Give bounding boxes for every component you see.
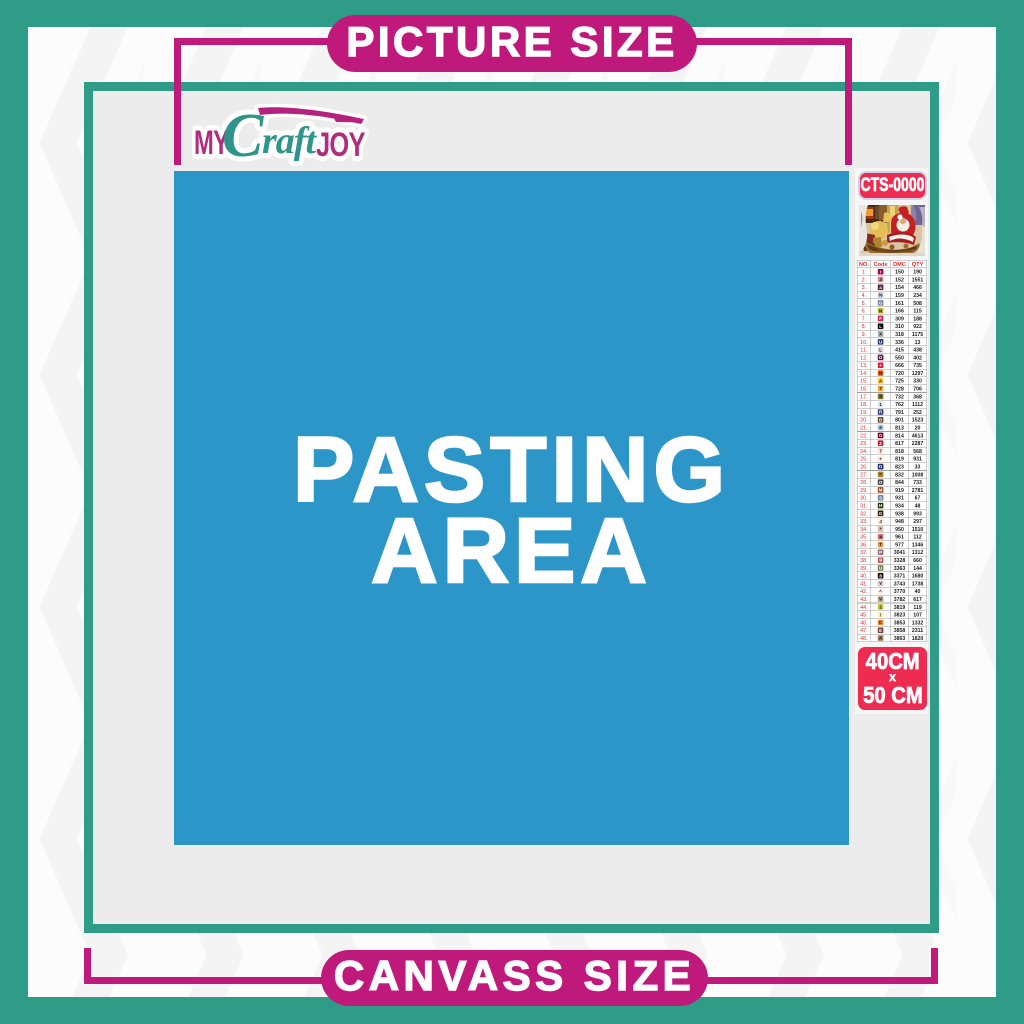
svg-text:961: 961 [895,535,904,541]
svg-text:3743: 3743 [894,582,906,588]
svg-text:115: 115 [914,309,922,315]
svg-text:H: H [879,503,882,508]
svg-text:22.: 22. [860,434,868,440]
svg-text:10.: 10. [860,340,868,346]
svg-text:25.: 25. [860,457,868,463]
svg-text:Code: Code [874,262,888,268]
svg-text:818: 818 [895,449,904,455]
svg-text:931: 931 [895,496,904,502]
svg-text:34.: 34. [860,527,868,533]
svg-text:7.: 7. [862,317,867,323]
svg-text:3863: 3863 [894,636,906,642]
svg-text:5.: 5. [862,301,867,307]
svg-text:29.: 29. [860,488,868,494]
svg-text:161: 161 [895,301,904,307]
svg-text:666: 666 [895,363,904,369]
svg-text:144: 144 [914,566,923,572]
svg-text:159: 159 [895,293,904,299]
svg-text:297: 297 [914,519,923,525]
svg-text:4613: 4613 [912,434,924,440]
svg-text:G: G [879,301,883,306]
svg-text:16.: 16. [860,387,868,393]
svg-text:934: 934 [895,504,904,510]
svg-text:948: 948 [895,519,904,525]
svg-text:67: 67 [915,496,921,502]
svg-text:931: 931 [914,457,923,463]
svg-text:15.: 15. [860,379,868,385]
svg-text:402: 402 [914,356,923,362]
svg-text:817: 817 [895,441,904,447]
svg-text:20.: 20. [860,418,868,424]
svg-text:48.: 48. [860,636,868,642]
svg-text:14.: 14. [860,371,868,377]
svg-text:*: * [880,527,882,532]
svg-text:3858: 3858 [894,629,906,635]
svg-text:801: 801 [895,418,904,424]
svg-text:T: T [880,542,883,547]
svg-text:N: N [879,371,882,376]
svg-text:P: P [879,550,882,555]
svg-text:L: L [880,324,883,329]
svg-text:1551: 1551 [912,278,924,284]
svg-text:993: 993 [914,512,923,518]
svg-text:466: 466 [914,285,923,291]
svg-text:32.: 32. [860,512,868,518]
svg-text:S: S [879,394,882,399]
svg-text:33: 33 [915,465,921,471]
svg-text:819: 819 [895,457,904,463]
svg-text:1312: 1312 [912,551,924,557]
svg-text:190: 190 [914,270,923,276]
svg-text:438: 438 [914,348,923,354]
svg-text:^: ^ [880,589,883,594]
svg-text:Y: Y [879,581,882,586]
svg-text:19.: 19. [860,410,868,416]
svg-text:raft: raft [262,120,317,162]
svg-text:31.: 31. [860,504,868,510]
svg-text:44.: 44. [860,605,868,611]
svg-text:252: 252 [914,410,923,416]
svg-text:40.: 40. [860,574,868,580]
svg-text:660: 660 [914,558,923,564]
svg-text:762: 762 [895,402,904,408]
svg-text:728: 728 [895,387,904,393]
svg-text:18.: 18. [860,402,868,408]
svg-text:6.: 6. [862,309,867,315]
svg-text:733: 733 [914,480,923,486]
svg-text:1510: 1510 [912,527,924,533]
svg-text:1297: 1297 [912,371,924,377]
svg-text:166: 166 [895,309,904,315]
svg-text:568: 568 [914,449,923,455]
svg-text:21.: 21. [860,426,868,432]
svg-text:2.: 2. [862,278,867,284]
svg-text:1.: 1. [862,270,867,276]
svg-text:27.: 27. [860,473,868,479]
svg-text:336: 336 [895,340,904,346]
svg-text:NO.: NO. [859,262,869,268]
svg-text:20: 20 [915,426,921,432]
svg-text:17.: 17. [860,395,868,401]
svg-text:3819: 3819 [894,605,906,611]
svg-text:309: 309 [895,317,904,323]
svg-text:732: 732 [895,395,904,401]
svg-text:234: 234 [914,293,923,299]
svg-text:150: 150 [895,270,904,276]
svg-text:844: 844 [895,480,904,486]
svg-text:26.: 26. [860,465,868,471]
svg-text:3041: 3041 [894,551,906,557]
svg-text:415: 415 [895,348,904,354]
svg-text:938: 938 [895,512,904,518]
svg-text:40: 40 [915,590,921,596]
svg-text:C: C [222,102,264,166]
svg-text:1175: 1175 [912,332,923,338]
svg-text:U: U [879,566,882,571]
svg-text:3853: 3853 [894,621,906,627]
svg-text:45.: 45. [860,613,868,619]
svg-text:36.: 36. [860,543,868,549]
svg-text:550: 550 [895,356,904,362]
svg-text:1112: 1112 [912,402,923,408]
svg-text:814: 814 [895,434,904,440]
svg-text:112: 112 [914,535,922,541]
svg-text:DMC: DMC [893,262,906,268]
svg-text:33.: 33. [860,519,868,525]
svg-text:720: 720 [895,371,904,377]
svg-text:706: 706 [914,387,923,393]
svg-text:617: 617 [914,597,923,603]
svg-text:O: O [879,433,883,438]
svg-text:152: 152 [895,278,904,284]
svg-text:1738: 1738 [912,582,924,588]
svg-text:X: X [879,332,882,337]
svg-text:2311: 2311 [912,629,923,635]
svg-text:735: 735 [914,363,923,369]
svg-text:E: E [879,628,882,633]
svg-text:508: 508 [914,301,923,307]
svg-text:11.: 11. [861,348,868,354]
svg-text:1346: 1346 [912,543,924,549]
svg-text:Z: Z [880,441,883,446]
svg-text:38.: 38. [860,558,868,564]
svg-text:4.: 4. [862,293,867,299]
svg-text:188: 188 [914,317,923,323]
svg-text:D: D [879,464,882,469]
svg-text:8.: 8. [862,324,867,330]
svg-text:24.: 24. [860,449,868,455]
svg-text:919: 919 [895,488,904,494]
svg-text:+: + [880,457,883,462]
svg-text:119: 119 [914,605,922,611]
svg-text:S: S [879,496,882,501]
svg-text:154: 154 [895,285,904,291]
svg-text:%: % [879,293,883,298]
svg-text:+: + [880,363,883,368]
svg-text:JOY: JOY [316,127,365,164]
svg-text:791: 791 [895,410,904,416]
svg-text:QTY: QTY [912,262,924,268]
svg-text:42.: 42. [860,590,868,596]
svg-text:=: = [880,472,883,477]
svg-text:47.: 47. [860,629,868,635]
svg-text:1680: 1680 [912,574,924,580]
svg-text:2781: 2781 [912,488,924,494]
svg-text:13: 13 [915,340,921,346]
svg-text:43.: 43. [860,597,868,603]
svg-text:310: 310 [895,324,904,330]
svg-text:1523: 1523 [912,418,924,424]
svg-text:F: F [880,316,883,321]
svg-text:41.: 41. [860,582,868,588]
svg-text:3823: 3823 [894,613,906,619]
svg-text:3371: 3371 [894,574,906,580]
svg-text:368: 368 [914,395,923,401]
svg-text:977: 977 [895,543,904,549]
svg-text:U: U [879,340,882,345]
svg-text:950: 950 [895,527,904,533]
svg-text:1332: 1332 [912,621,924,627]
svg-text:2287: 2287 [912,441,924,447]
svg-text:L: L [880,348,883,353]
svg-text:M: M [879,488,883,493]
svg-text:48: 48 [915,504,921,510]
svg-text:N: N [879,309,882,314]
svg-text:3328: 3328 [894,558,906,564]
svg-text:3770: 3770 [894,590,906,596]
svg-text:107: 107 [914,613,923,619]
svg-text:3782: 3782 [894,597,906,603]
svg-text:B: B [879,418,882,423]
svg-text:D: D [879,355,882,360]
svg-text:39.: 39. [860,566,868,572]
svg-text:9.: 9. [862,332,867,338]
svg-text:3363: 3363 [894,566,906,572]
svg-text:13.: 13. [860,363,868,369]
svg-text:3.: 3. [862,285,867,291]
svg-text:823: 823 [895,465,904,471]
svg-text:O: O [879,480,883,485]
svg-text:1820: 1820 [912,636,924,642]
svg-text:37.: 37. [860,551,868,557]
svg-text:28.: 28. [860,480,868,486]
svg-text:30.: 30. [860,496,868,502]
svg-text:725: 725 [895,379,904,385]
svg-text:35.: 35. [860,535,868,541]
svg-text:V: V [879,597,882,602]
svg-text:330: 330 [914,379,923,385]
svg-text:46.: 46. [860,621,868,627]
svg-text:23.: 23. [860,441,868,447]
svg-text:922: 922 [914,324,923,330]
svg-text:318: 318 [895,332,904,338]
svg-text:1008: 1008 [912,473,924,479]
svg-text:G: G [879,511,883,516]
svg-text:12.: 12. [860,356,868,362]
svg-text:813: 813 [895,426,904,432]
svg-text:832: 832 [895,473,904,479]
